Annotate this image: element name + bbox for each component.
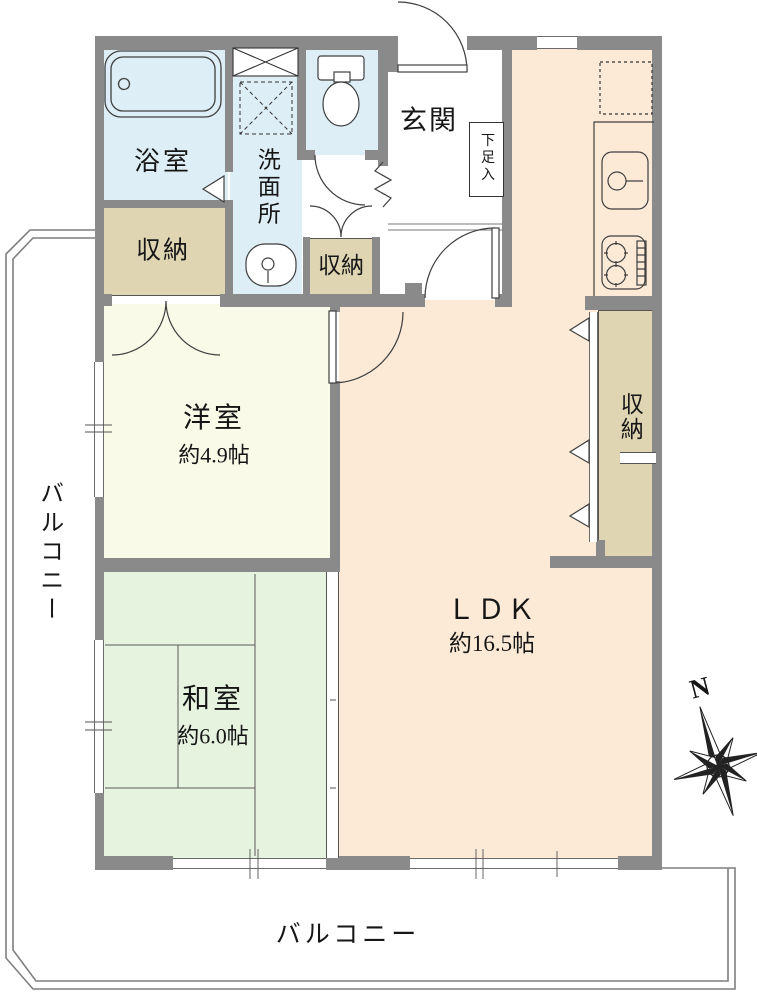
room-kitchen: [510, 47, 654, 308]
room-label-washroom: 洗面所: [253, 148, 279, 229]
window: [410, 858, 618, 869]
room-label-western: 洋室: [183, 403, 245, 435]
room-size-ldk: 約16.5帖: [449, 631, 535, 657]
wall-segment: [95, 294, 112, 306]
compass-rose-icon: [656, 693, 757, 829]
wall-segment: [95, 558, 340, 572]
room-label-shoe-cabinet: 下足入: [478, 133, 494, 184]
wall-segment: [372, 237, 380, 297]
room-label-storage-bath: 収納: [136, 238, 190, 267]
closet-folding-door-track: [589, 312, 598, 542]
wall-segment: [297, 36, 306, 158]
window: [94, 362, 104, 497]
sliding-partition: [326, 572, 339, 858]
wall-segment: [550, 556, 662, 568]
room-label-japanese: 和室: [182, 684, 244, 716]
window: [173, 858, 326, 869]
wall-segment: [585, 296, 662, 310]
wall-segment: [577, 36, 662, 50]
wall-segment: [95, 200, 233, 208]
wall-segment: [297, 150, 315, 160]
wall-segment: [495, 294, 512, 307]
window: [537, 36, 577, 49]
wall-segment: [95, 36, 104, 362]
room-label-genkan: 玄関: [400, 105, 458, 136]
wall-segment: [330, 381, 340, 562]
wall-segment: [380, 50, 398, 72]
balcony-label-bottom: バルコニー: [276, 922, 421, 951]
wall-segment: [405, 283, 422, 307]
window: [94, 640, 104, 793]
wall-segment: [596, 540, 605, 558]
closet-shelf: [620, 452, 656, 464]
room-label-storage-ldk: 収納: [616, 392, 642, 442]
balcony-label-left: バルコニー: [34, 481, 62, 626]
room-size-japanese: 約6.0帖: [177, 723, 249, 748]
room-toilet: [303, 45, 381, 155]
room-size-western: 約4.9帖: [178, 442, 250, 467]
room-label-ldk: ＬＤＫ: [447, 595, 537, 627]
compass-north-label: N: [687, 670, 714, 705]
wall-segment: [220, 294, 425, 307]
room-label-storage-hall: 収納: [318, 253, 364, 279]
wall-segment: [225, 203, 233, 300]
wall-segment: [225, 45, 233, 172]
wall-segment: [95, 36, 398, 50]
entrance-opening: [398, 36, 467, 72]
room-bathroom: [98, 45, 228, 203]
wall-segment: [326, 856, 410, 870]
room-label-bathroom: 浴室: [134, 147, 192, 177]
wall-segment: [330, 306, 340, 312]
floorplan: 浴室 収納 洗面所 収納 玄関 下足入 洋室 約4.9帖 ＬＤＫ 約16.5帖 …: [0, 0, 757, 1000]
wall-segment: [95, 856, 173, 870]
wall-segment: [303, 237, 310, 297]
